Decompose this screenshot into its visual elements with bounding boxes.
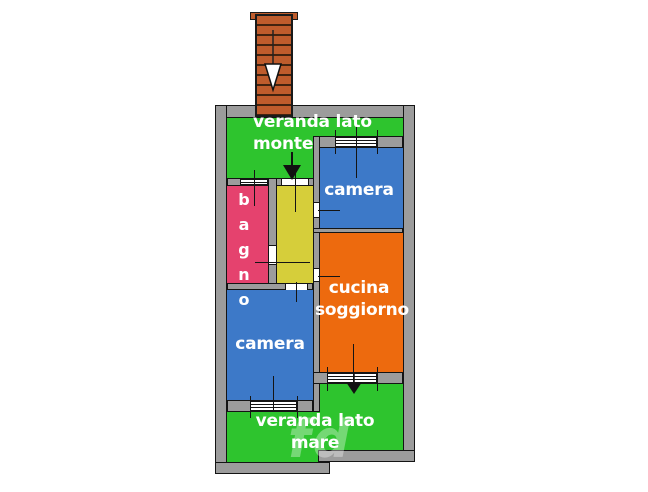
cucina-label: cucina soggiorno bbox=[315, 278, 403, 322]
tick-mark bbox=[318, 276, 340, 277]
wall-outer-right bbox=[403, 105, 415, 462]
window-cucina bbox=[327, 373, 377, 383]
tick-mark bbox=[318, 210, 340, 211]
wall-camera-cucina bbox=[313, 228, 403, 233]
tick-mark bbox=[327, 367, 328, 391]
wall-bagno-corridor bbox=[268, 178, 277, 290]
bagno-label: bagno bbox=[233, 190, 253, 286]
tick-mark bbox=[273, 376, 274, 412]
tick-mark bbox=[254, 170, 255, 206]
staircase bbox=[255, 14, 293, 117]
floor-plan: veranda lato monte camera cucina soggior… bbox=[0, 0, 648, 492]
tick-mark bbox=[255, 262, 310, 263]
camera-bottom-label: camera bbox=[227, 334, 313, 356]
tick-mark bbox=[296, 282, 297, 302]
veranda-monte-label: veranda lato monte bbox=[253, 112, 398, 156]
wall-outer-left bbox=[215, 105, 227, 474]
tick-mark bbox=[295, 168, 296, 212]
camera-top-label: camera bbox=[315, 180, 403, 202]
tick-mark bbox=[353, 344, 354, 384]
tick-mark bbox=[377, 367, 378, 391]
watermark: fd bbox=[288, 410, 352, 470]
